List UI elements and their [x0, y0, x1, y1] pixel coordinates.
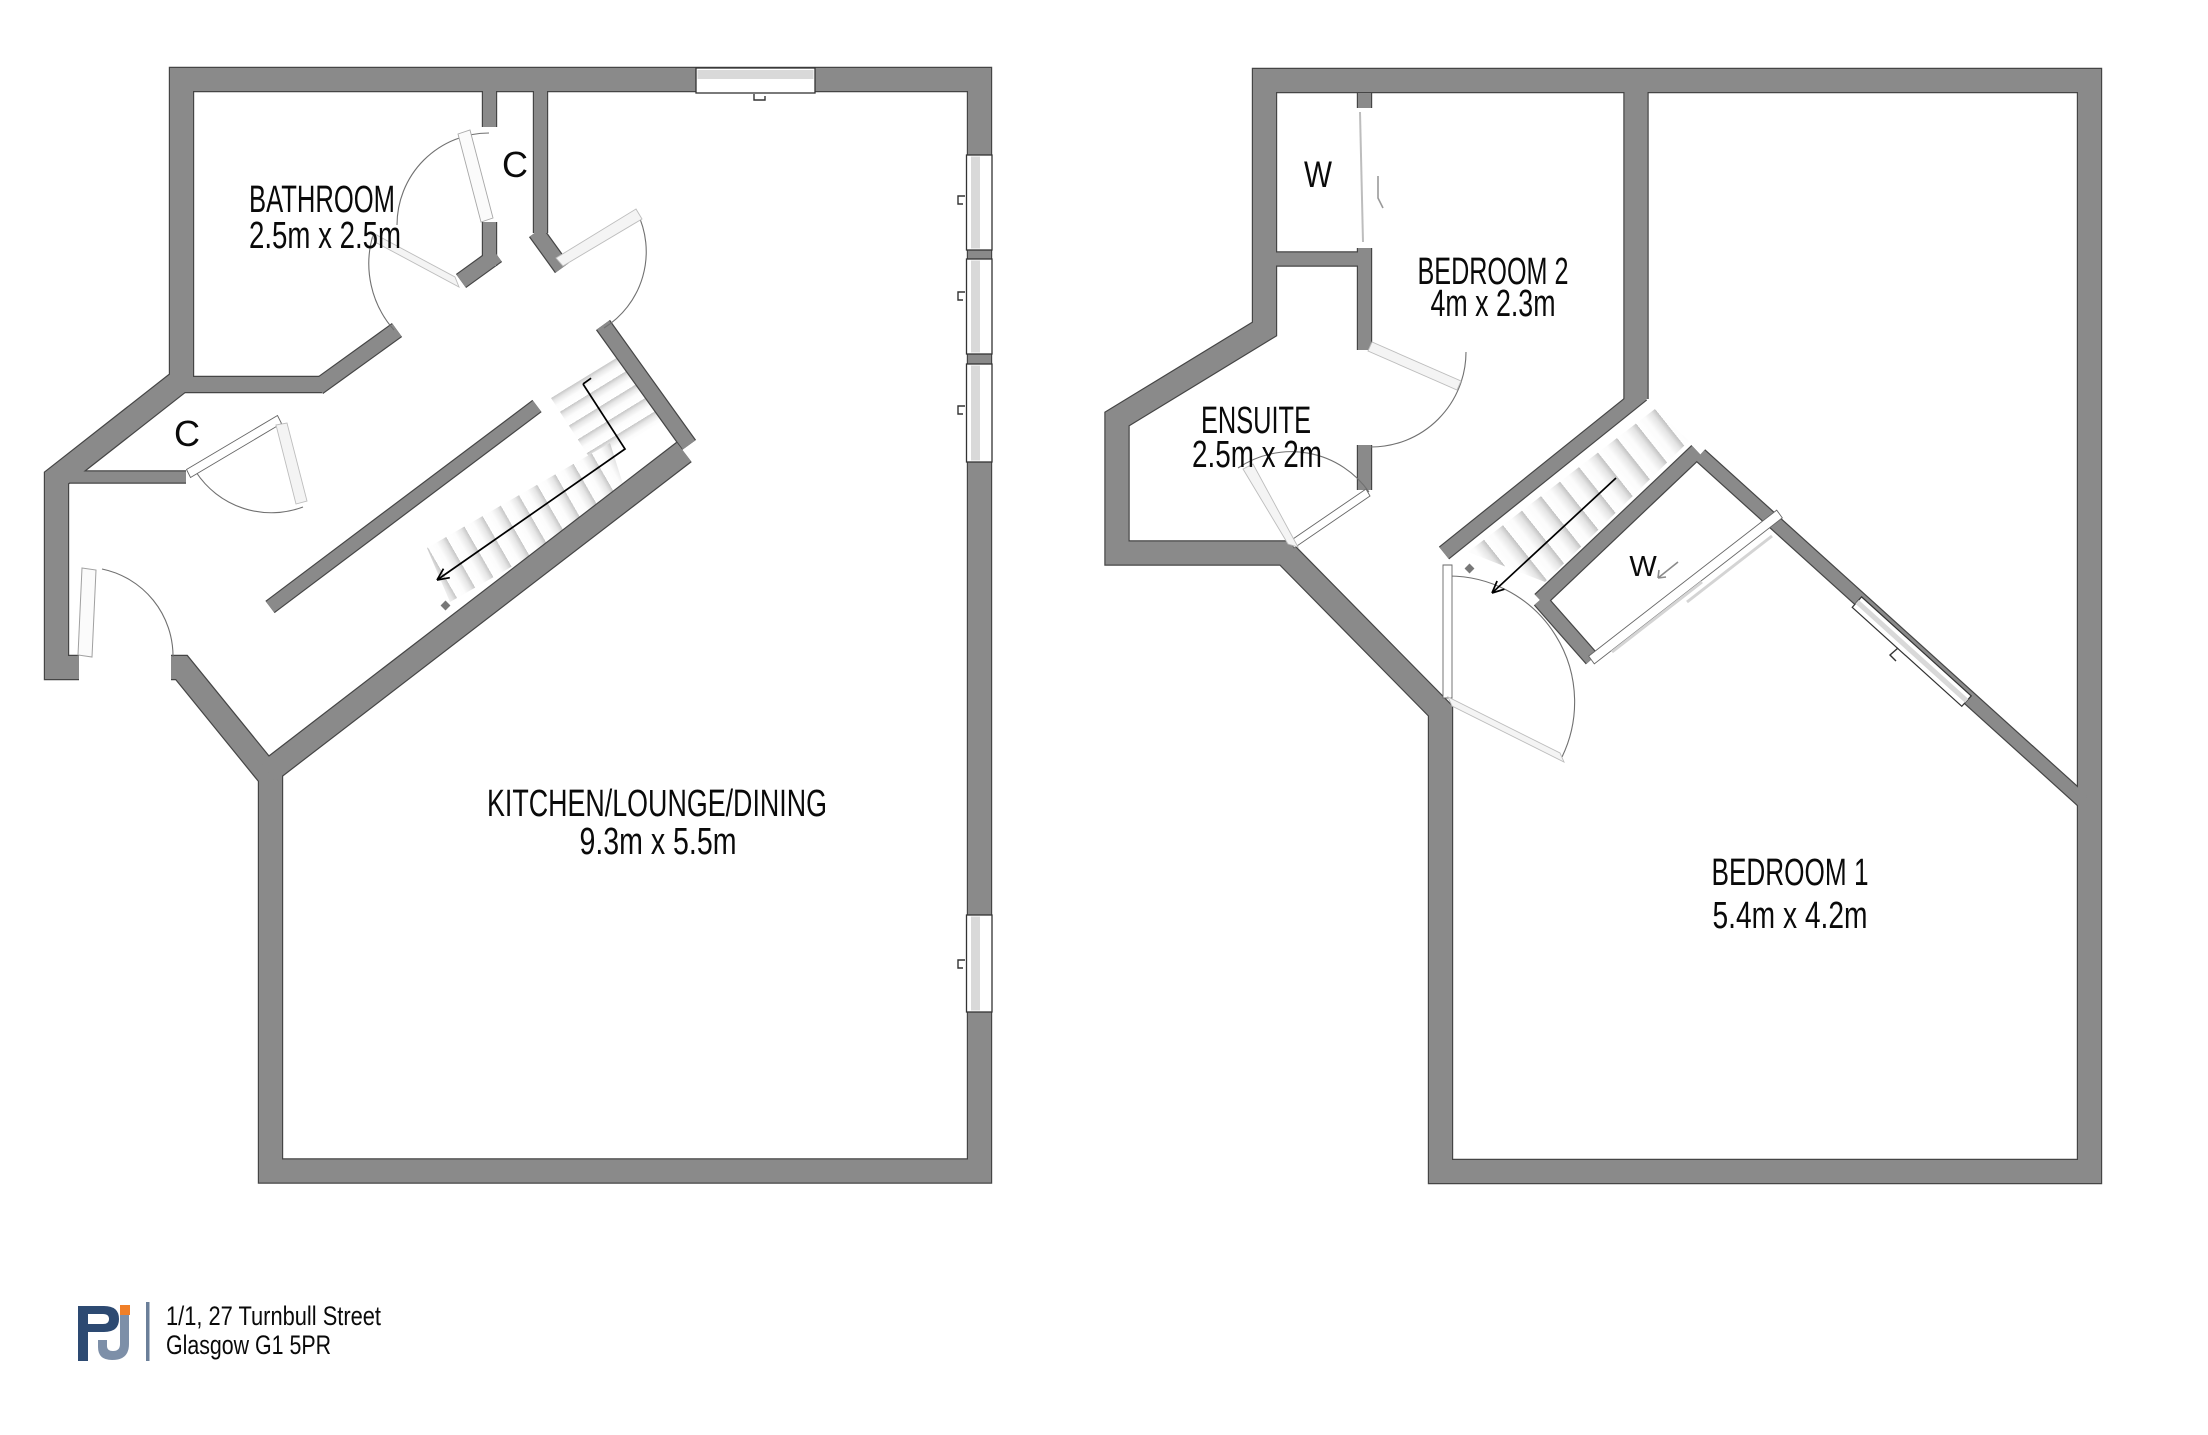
svg-text:W: W	[1304, 154, 1332, 195]
svg-text:BEDROOM 1: BEDROOM 1	[1712, 852, 1869, 894]
svg-text:2.5m x 2m: 2.5m x 2m	[1192, 434, 1322, 476]
svg-text:1/1, 27 Turnbull Street: 1/1, 27 Turnbull Street	[166, 1301, 381, 1331]
svg-text:C: C	[502, 144, 528, 185]
svg-text:KITCHEN/LOUNGE/DINING: KITCHEN/LOUNGE/DINING	[487, 783, 827, 825]
svg-text:C: C	[174, 413, 200, 454]
svg-text:Glasgow G1 5PR: Glasgow G1 5PR	[166, 1330, 331, 1360]
svg-text:2.5m x 2.5m: 2.5m x 2.5m	[249, 215, 401, 257]
svg-text:4m x 2.3m: 4m x 2.3m	[1431, 283, 1556, 325]
svg-text:9.3m x 5.5m: 9.3m x 5.5m	[580, 821, 737, 863]
svg-text:W: W	[1629, 551, 1657, 583]
svg-text:5.4m x 4.2m: 5.4m x 4.2m	[1713, 895, 1868, 937]
